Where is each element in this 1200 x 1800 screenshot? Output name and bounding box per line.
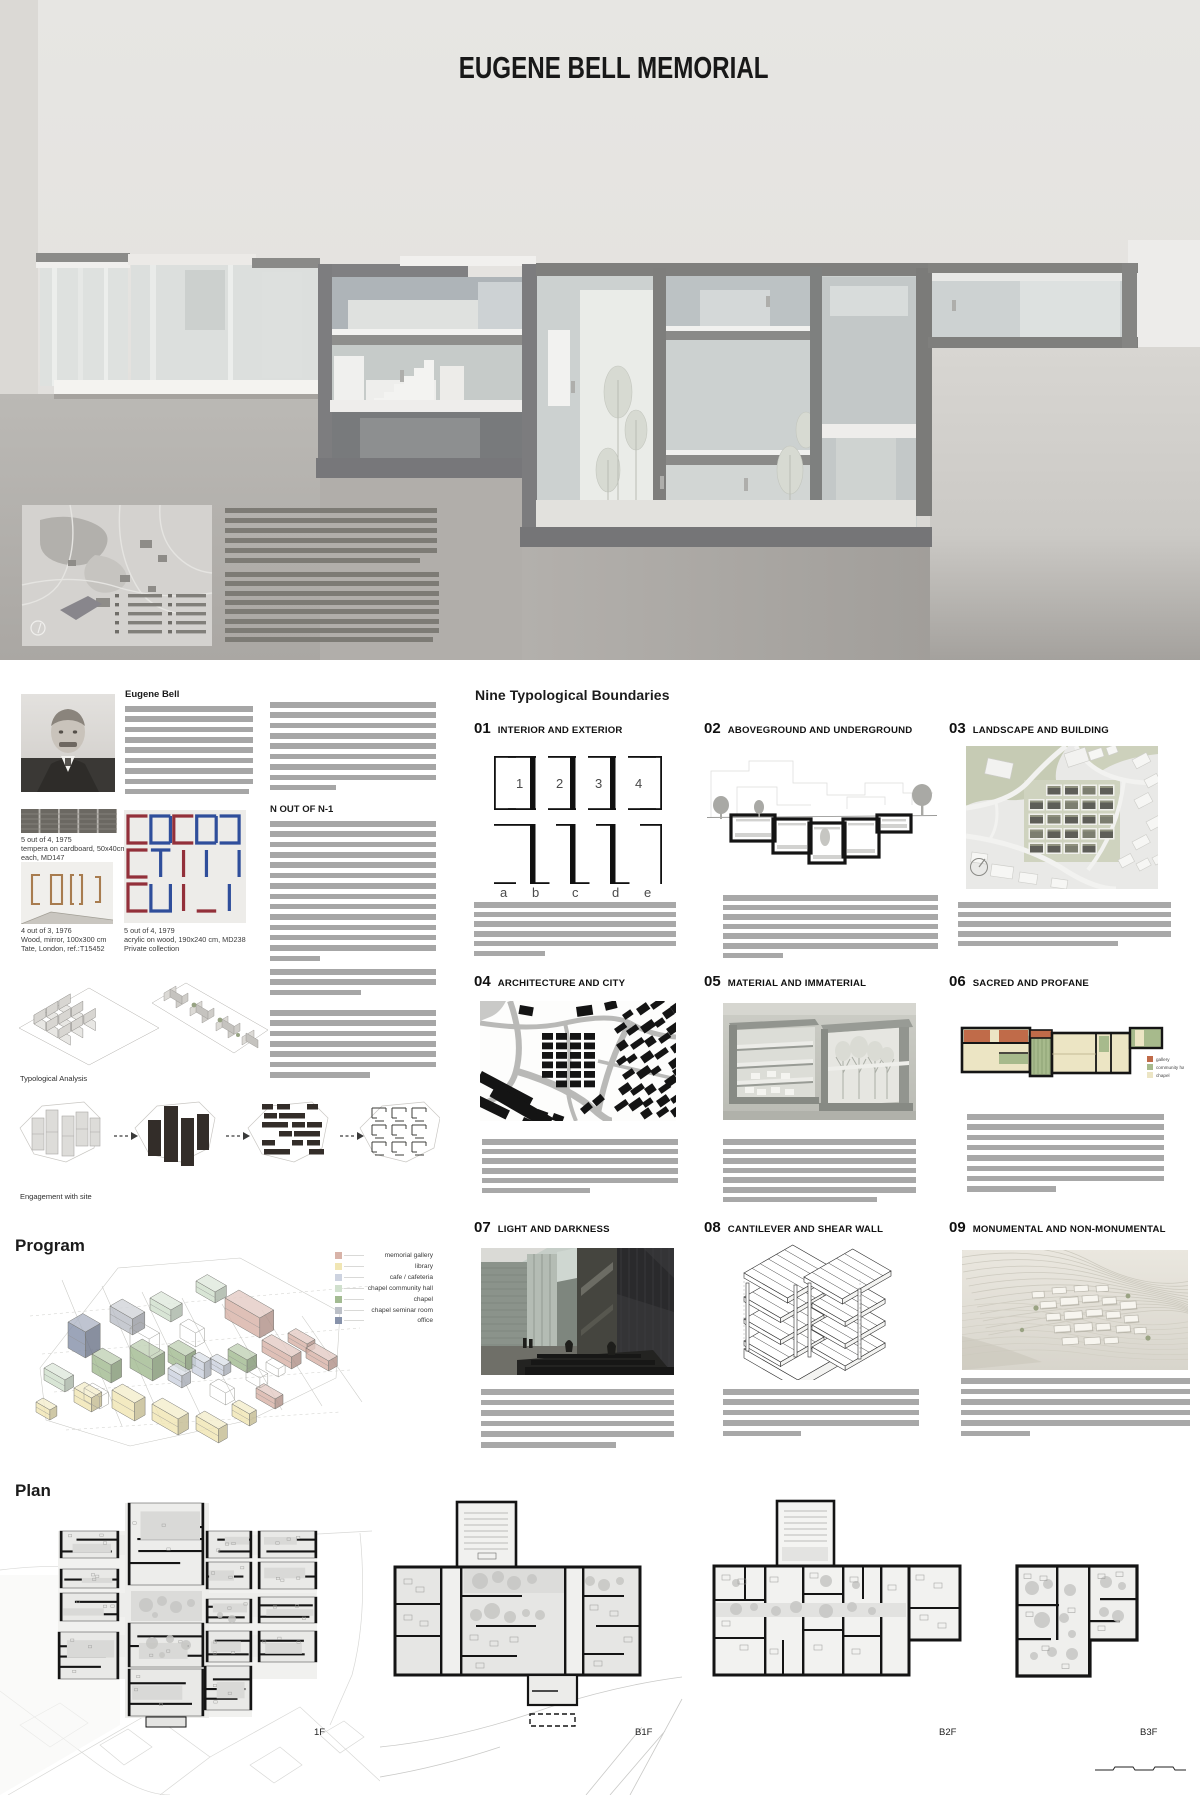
svg-text:gallery: gallery: [1156, 1057, 1170, 1062]
svg-text:4: 4: [635, 776, 642, 791]
svg-text:e: e: [644, 885, 651, 898]
svg-text:a: a: [500, 885, 508, 898]
svg-text:d: d: [612, 885, 619, 898]
svg-text:community hall: community hall: [1156, 1065, 1184, 1070]
svg-text:b: b: [532, 885, 539, 898]
svg-text:1: 1: [516, 776, 523, 791]
svg-text:c: c: [572, 885, 579, 898]
svg-text:3: 3: [595, 776, 602, 791]
svg-text:chapel: chapel: [1156, 1073, 1170, 1078]
svg-text:2: 2: [556, 776, 563, 791]
